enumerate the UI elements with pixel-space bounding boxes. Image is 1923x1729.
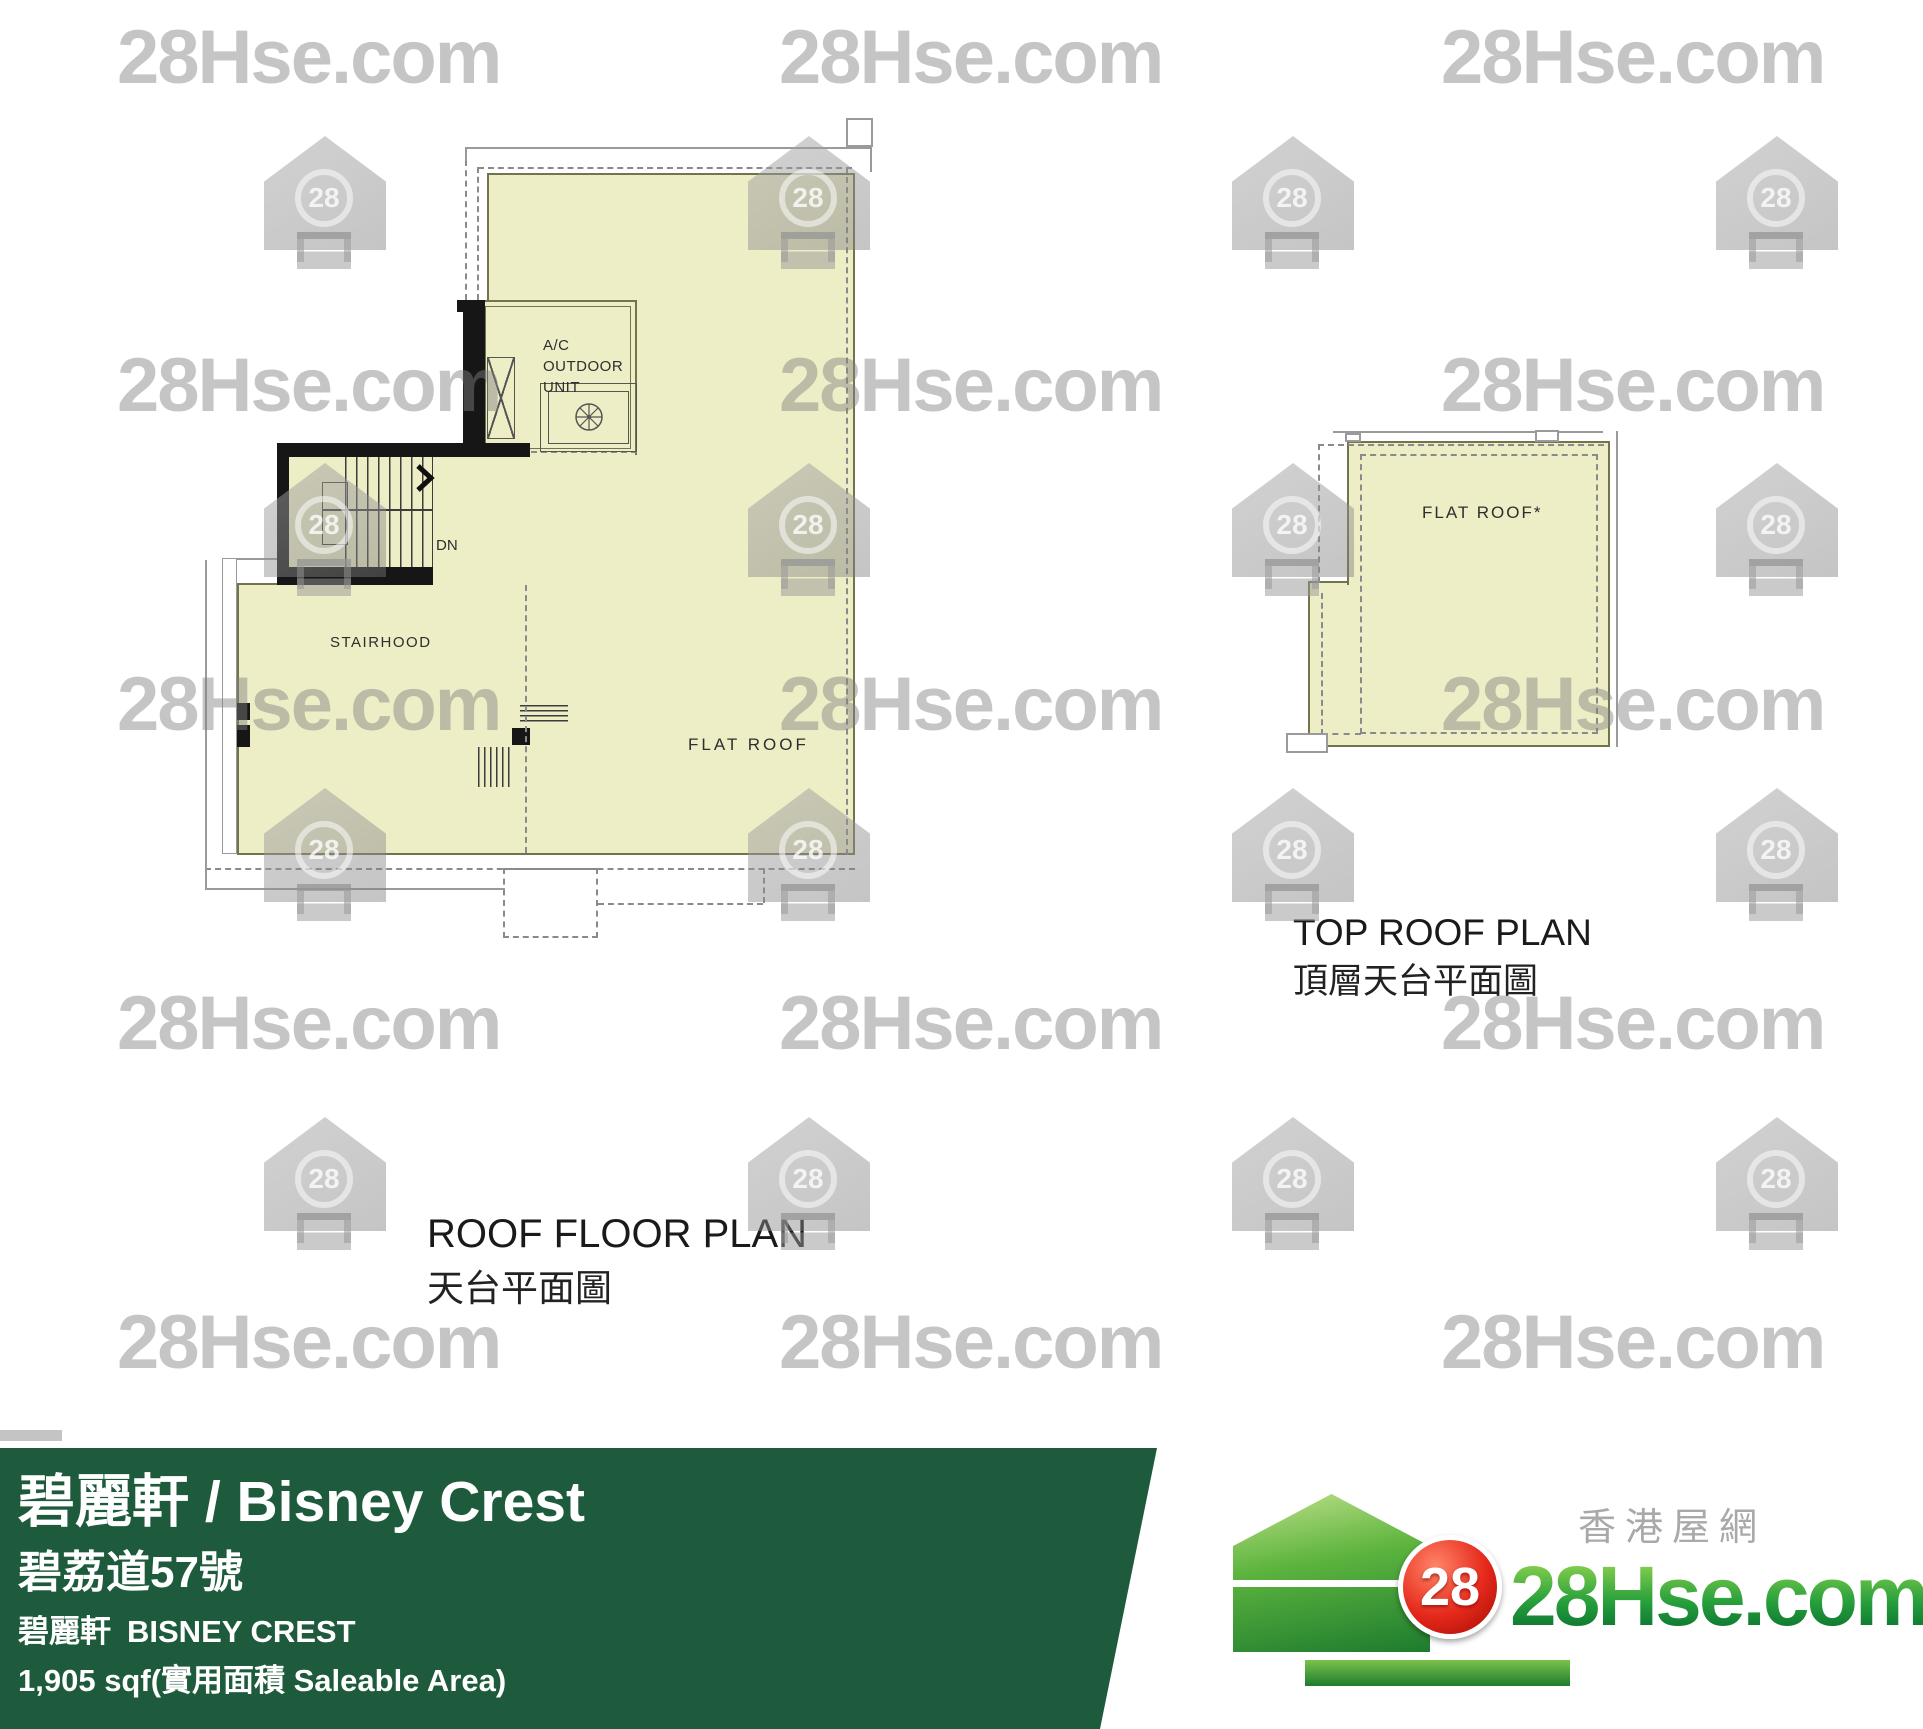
watermark-house-base bbox=[1749, 559, 1803, 596]
top-roof-plan-title: TOP ROOF PLAN bbox=[1293, 912, 1592, 954]
watermark-ring: 28 bbox=[1747, 1150, 1805, 1208]
plan-gray-rect bbox=[1535, 430, 1559, 442]
watermark-ring-number: 28 bbox=[1760, 182, 1791, 214]
plan-line-olive bbox=[479, 300, 637, 302]
watermark-house-icon: 28 bbox=[1716, 463, 1838, 597]
plan-line-olive bbox=[487, 173, 855, 175]
watermark-house-icon: 28 bbox=[264, 1117, 386, 1251]
plan-wall bbox=[277, 443, 530, 457]
plan-line-olive bbox=[237, 583, 279, 585]
plan-line-gray bbox=[490, 147, 872, 149]
roof-floor-plan: A/C OUTDOOR UNIT DN STAIRHOOD FLAT ROOF bbox=[170, 110, 882, 990]
plan-gray-rect bbox=[1345, 433, 1361, 442]
watermark-house-icon: 28 bbox=[1232, 788, 1354, 922]
stairs-down-label: DN bbox=[436, 537, 458, 554]
plan-dash-h bbox=[598, 903, 763, 905]
plan-line-olive bbox=[1347, 441, 1349, 585]
watermark-text: 28Hse.com bbox=[779, 14, 1162, 101]
watermark-ring: 28 bbox=[1747, 169, 1805, 227]
plan-dash-v bbox=[465, 160, 467, 300]
watermark-ring: 28 bbox=[1747, 496, 1805, 554]
roof-floor-plan-title: ROOF FLOOR PLAN bbox=[427, 1212, 807, 1257]
watermark-ring-number: 28 bbox=[792, 1163, 823, 1195]
plan-line-olive bbox=[1347, 441, 1610, 443]
watermark-house-shape bbox=[1716, 463, 1838, 577]
watermark-house-icon: 28 bbox=[1716, 788, 1838, 922]
plan-line-olive bbox=[237, 853, 855, 855]
property-address: 碧荔道57號 bbox=[18, 1536, 243, 1600]
property-area: 1,905 sqf(實用面積 Saleable Area) bbox=[18, 1655, 506, 1700]
plan-dash-v bbox=[763, 868, 765, 903]
plan-area-yellow bbox=[433, 457, 493, 587]
watermark-house-shape bbox=[264, 1117, 386, 1231]
plan-wall bbox=[512, 728, 530, 745]
watermark-text: 28Hse.com bbox=[1441, 342, 1824, 429]
plan-dash-v bbox=[1321, 593, 1323, 735]
fan-icon bbox=[574, 402, 604, 432]
ac-louver-icon bbox=[487, 357, 515, 439]
plan-wall bbox=[277, 443, 289, 585]
watermark-fragment bbox=[0, 1430, 62, 1441]
watermark-house-shape bbox=[1232, 136, 1354, 250]
top-roof-plan-title-zh: 頂層天台平面圖 bbox=[1293, 953, 1538, 1004]
property-title: 碧麗軒 / Bisney Crest bbox=[18, 1456, 585, 1538]
watermark-house-base bbox=[297, 1213, 351, 1250]
plan-line-gray bbox=[1333, 431, 1603, 433]
watermark-ring-number: 28 bbox=[1276, 1163, 1307, 1195]
watermark-ring-number: 28 bbox=[308, 1163, 339, 1195]
watermark-ring-number: 28 bbox=[1760, 1163, 1791, 1195]
plan-dash-v bbox=[846, 167, 848, 855]
watermark-house-shape bbox=[1232, 788, 1354, 902]
logo-badge-number: 28 bbox=[1420, 1556, 1480, 1618]
watermark-ring-number: 28 bbox=[1760, 509, 1791, 541]
watermark-text: 28Hse.com bbox=[117, 1299, 500, 1386]
plan-area-yellow bbox=[237, 585, 527, 855]
top-roof-plan: FLAT ROOF* bbox=[1282, 425, 1637, 770]
stairs-direction-arrow-icon bbox=[414, 462, 436, 494]
plan-line-gray bbox=[465, 147, 490, 149]
plan-grille-h bbox=[520, 705, 568, 723]
ac-outdoor-unit-label: A/C OUTDOOR UNIT bbox=[543, 335, 623, 398]
plan-dash-h bbox=[478, 167, 852, 169]
flat-roof-star-label: FLAT ROOF* bbox=[1422, 503, 1542, 523]
property-name-en: BISNEY CREST bbox=[127, 1614, 356, 1649]
watermark-house-base bbox=[1265, 232, 1319, 269]
plan-line-olive bbox=[1308, 581, 1310, 747]
plan-line-gray bbox=[465, 147, 467, 161]
watermark-house-icon: 28 bbox=[1716, 136, 1838, 270]
plan-line-olive bbox=[1308, 745, 1610, 747]
watermark-text: 28Hse.com bbox=[1441, 1299, 1824, 1386]
plan-line-gray bbox=[205, 888, 505, 890]
watermark-house-base bbox=[1265, 1213, 1319, 1250]
logo-28-badge: 28 bbox=[1398, 1535, 1502, 1639]
plan-white-wall bbox=[222, 558, 237, 854]
floorplan-page: A/C OUTDOOR UNIT DN STAIRHOOD FLAT ROOF … bbox=[0, 0, 1923, 1729]
plan-wall bbox=[277, 567, 433, 585]
watermark-house-shape bbox=[1716, 136, 1838, 250]
watermark-house-base bbox=[1749, 232, 1803, 269]
watermark-text: 28Hse.com bbox=[117, 980, 500, 1067]
watermark-text: 28Hse.com bbox=[117, 14, 500, 101]
plan-dash-v bbox=[525, 585, 527, 853]
logo-house-base bbox=[1305, 1660, 1570, 1686]
plan-dash-v bbox=[1318, 444, 1320, 583]
site-name: 28Hse.com bbox=[1510, 1548, 1923, 1645]
watermark-ring: 28 bbox=[1263, 1150, 1321, 1208]
plan-line-olive bbox=[1308, 581, 1349, 583]
plan-line-olive bbox=[487, 173, 489, 302]
plan-line-gray bbox=[205, 560, 207, 890]
plan-line-gray bbox=[870, 147, 872, 172]
plan-line-olive bbox=[1608, 441, 1610, 747]
plan-dash-v bbox=[477, 167, 479, 300]
site-name-chinese: 香港屋網 bbox=[1578, 1496, 1766, 1551]
plan-dash-rect bbox=[503, 868, 598, 938]
roof-floor-plan-canvas bbox=[170, 110, 882, 990]
watermark-ring: 28 bbox=[779, 1150, 837, 1208]
property-name-line: 碧麗軒BISNEY CREST bbox=[18, 1606, 356, 1651]
watermark-house-icon: 28 bbox=[1232, 1117, 1354, 1251]
watermark-ring: 28 bbox=[1747, 821, 1805, 879]
top-roof-plan-canvas bbox=[1282, 425, 1637, 770]
watermark-house-shape bbox=[1232, 1117, 1354, 1231]
plan-grille-v bbox=[478, 747, 510, 787]
property-name-zh: 碧麗軒 bbox=[18, 1614, 111, 1649]
plan-dash-h bbox=[1318, 444, 1604, 446]
watermark-house-base bbox=[1749, 1213, 1803, 1250]
watermark-ring-number: 28 bbox=[1276, 834, 1307, 866]
watermark-ring-number: 28 bbox=[1760, 834, 1791, 866]
plan-area-yellow bbox=[1308, 583, 1349, 747]
site-logo: 香港屋網 28 28Hse.com bbox=[1233, 1470, 1923, 1710]
watermark-text: 28Hse.com bbox=[779, 980, 1162, 1067]
plan-gray-rect bbox=[846, 118, 873, 147]
watermark-ring: 28 bbox=[1263, 169, 1321, 227]
watermark-ring: 28 bbox=[1263, 821, 1321, 879]
watermark-text: 28Hse.com bbox=[779, 1299, 1162, 1386]
plan-gray-rect bbox=[1286, 733, 1328, 753]
plan-line-gray bbox=[1616, 431, 1618, 747]
watermark-house-icon: 28 bbox=[1232, 136, 1354, 270]
watermark-house-shape bbox=[1716, 1117, 1838, 1231]
watermark-ring-number: 28 bbox=[1276, 182, 1307, 214]
stairhood-label: STAIRHOOD bbox=[330, 634, 432, 651]
watermark-text: 28Hse.com bbox=[1441, 14, 1824, 101]
roof-floor-plan-title-zh: 天台平面圖 bbox=[427, 1258, 612, 1312]
watermark-ring: 28 bbox=[295, 1150, 353, 1208]
watermark-house-shape bbox=[1716, 788, 1838, 902]
flat-roof-label: FLAT ROOF bbox=[688, 735, 809, 755]
plan-dash-rect bbox=[1360, 454, 1598, 734]
plan-treads bbox=[345, 511, 433, 567]
watermark-house-icon: 28 bbox=[1716, 1117, 1838, 1251]
plan-inner-border-dark bbox=[322, 482, 348, 545]
plan-line-olive bbox=[853, 173, 855, 855]
watermark-house-base bbox=[1749, 884, 1803, 921]
